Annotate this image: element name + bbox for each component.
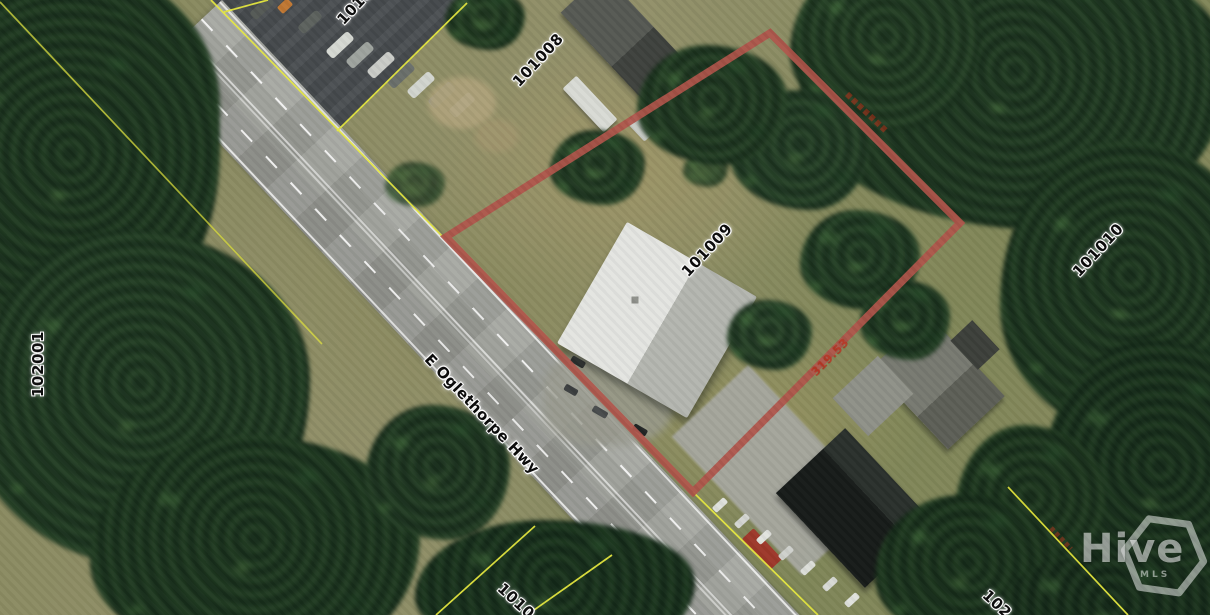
- parked-trailer: [822, 576, 838, 592]
- tree-cluster: [550, 130, 645, 205]
- parked-trailer: [712, 497, 728, 513]
- tree-cluster: [445, 0, 525, 50]
- watermark: Hive MLS: [1040, 512, 1210, 615]
- aerial-map-canvas[interactable]: 1010 101008 101009 101010 102001 1010 10…: [0, 0, 1210, 615]
- parcel-label-102001: 102001: [29, 331, 47, 397]
- tree-cluster: [385, 162, 445, 207]
- watermark-sub-text: MLS: [1140, 570, 1170, 580]
- watermark-brand-text: Hive: [1080, 526, 1184, 572]
- tree-cluster: [860, 280, 950, 360]
- parked-trailer: [844, 592, 860, 608]
- tree-cluster: [637, 45, 787, 165]
- rooftop-unit: [632, 297, 639, 304]
- parcel-label-101008: 101008: [509, 30, 567, 91]
- mobile-home: [563, 76, 618, 133]
- tree-cluster: [727, 300, 812, 370]
- parked-trailer: [734, 513, 750, 529]
- dirt-patch: [475, 119, 519, 153]
- dimension-label: 319.53: [808, 335, 851, 378]
